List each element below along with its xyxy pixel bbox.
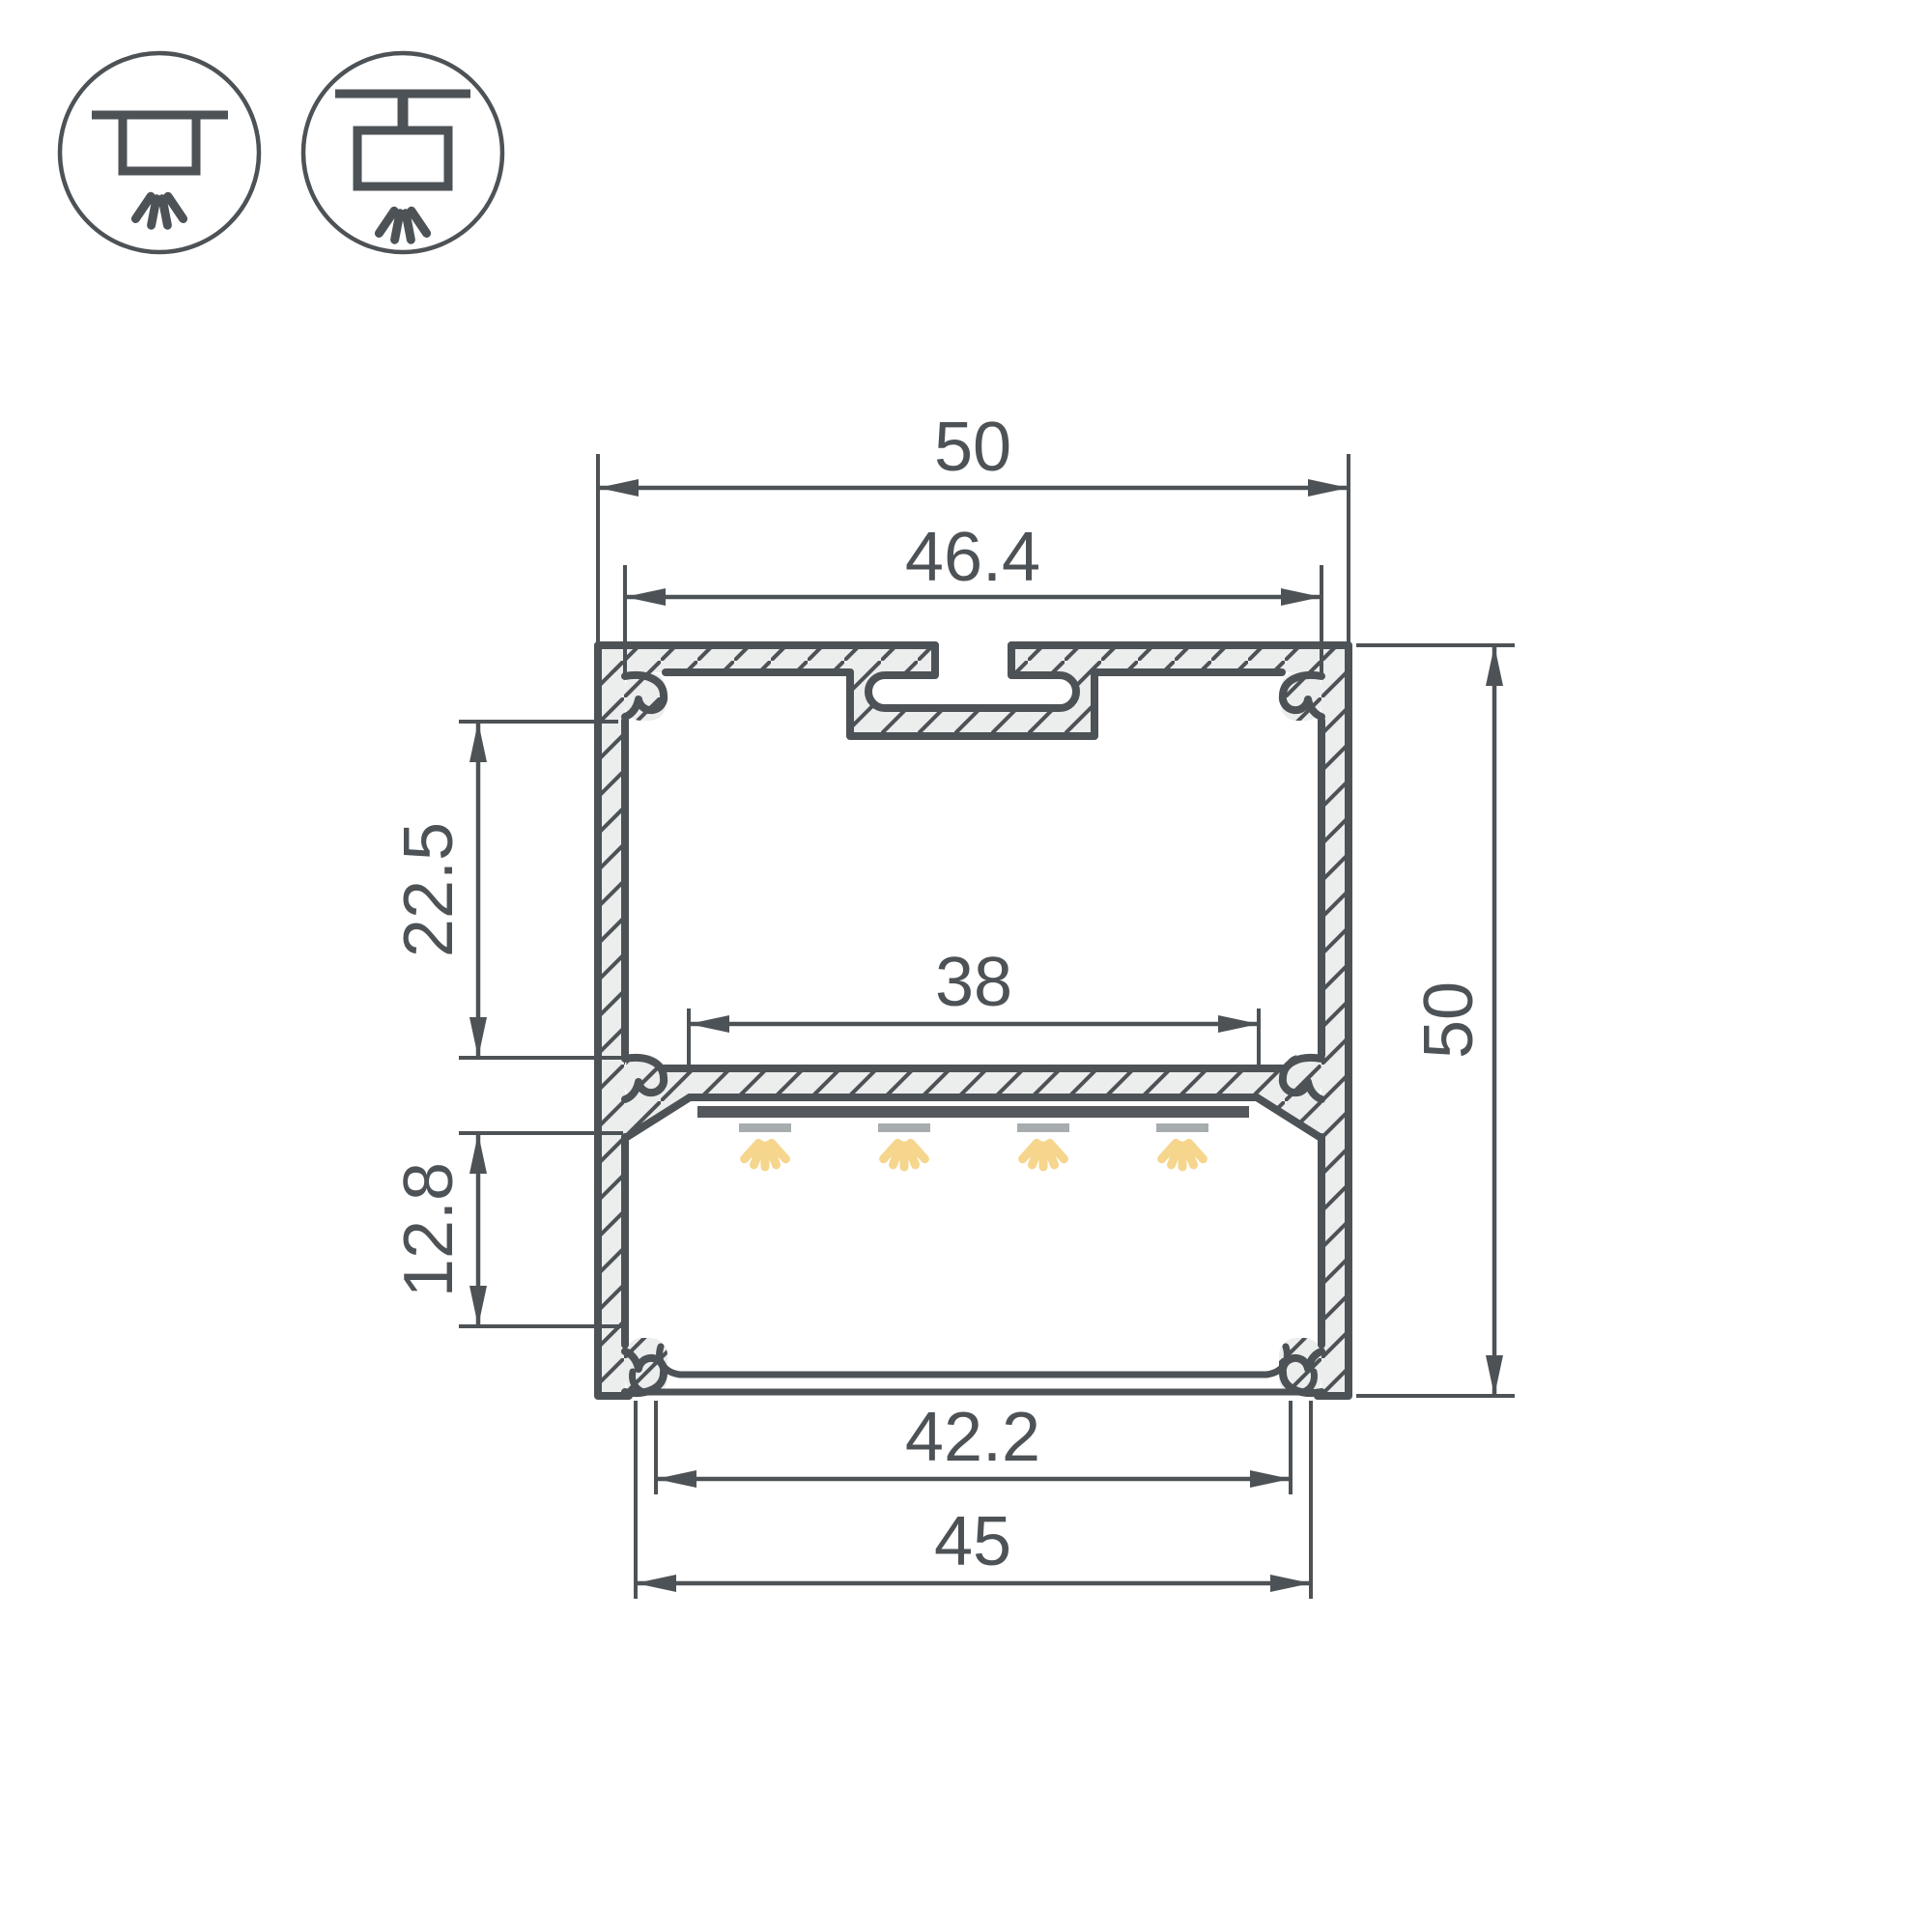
dim-cover-outer-width-label: 45: [934, 1503, 1011, 1580]
led-strip: [697, 1106, 1249, 1167]
dim-lower-chamber-height: 12.8: [390, 1133, 623, 1326]
led-module: [1017, 1123, 1069, 1132]
led-light-rays: [1162, 1143, 1204, 1167]
dim-upper-chamber-height: 22.5: [390, 722, 623, 1058]
led-light-rays: [745, 1143, 786, 1167]
led-light-rays: [1023, 1143, 1065, 1167]
dim-led-platform-width-label: 38: [935, 944, 1012, 1021]
dim-cover-inner-width-label: 42.2: [905, 1399, 1040, 1476]
led-light-rays: [884, 1143, 925, 1167]
dim-lower-chamber-height-label: 12.8: [390, 1162, 468, 1297]
fixture-box: [357, 130, 448, 186]
led-module: [739, 1123, 791, 1132]
dim-cover-inner-width: 42.2: [656, 1399, 1291, 1494]
light-rays: [379, 211, 426, 240]
led-pcb-bar: [697, 1106, 1249, 1118]
drawing-page: 50 46.4 22.5 38: [0, 0, 1932, 1932]
dim-overall-height-label: 50: [1410, 981, 1488, 1059]
dim-overall-width-label: 50: [934, 409, 1011, 486]
dim-led-platform-width: 38: [689, 944, 1259, 1066]
led-module: [1156, 1123, 1208, 1132]
light-rays: [135, 196, 183, 225]
fixture-box: [123, 115, 196, 171]
technical-drawing: 50 46.4 22.5 38: [0, 0, 1932, 1932]
led-module: [878, 1123, 930, 1132]
dim-upper-chamber-height-label: 22.5: [390, 822, 468, 957]
surface-mount-luminaire-icon: [60, 53, 259, 252]
diffuser-cover: [632, 1347, 1314, 1392]
dim-overall-height: 50: [1356, 645, 1515, 1396]
suspended-luminaire-icon: [303, 53, 502, 252]
dim-top-inner-width-label: 46.4: [905, 519, 1040, 596]
